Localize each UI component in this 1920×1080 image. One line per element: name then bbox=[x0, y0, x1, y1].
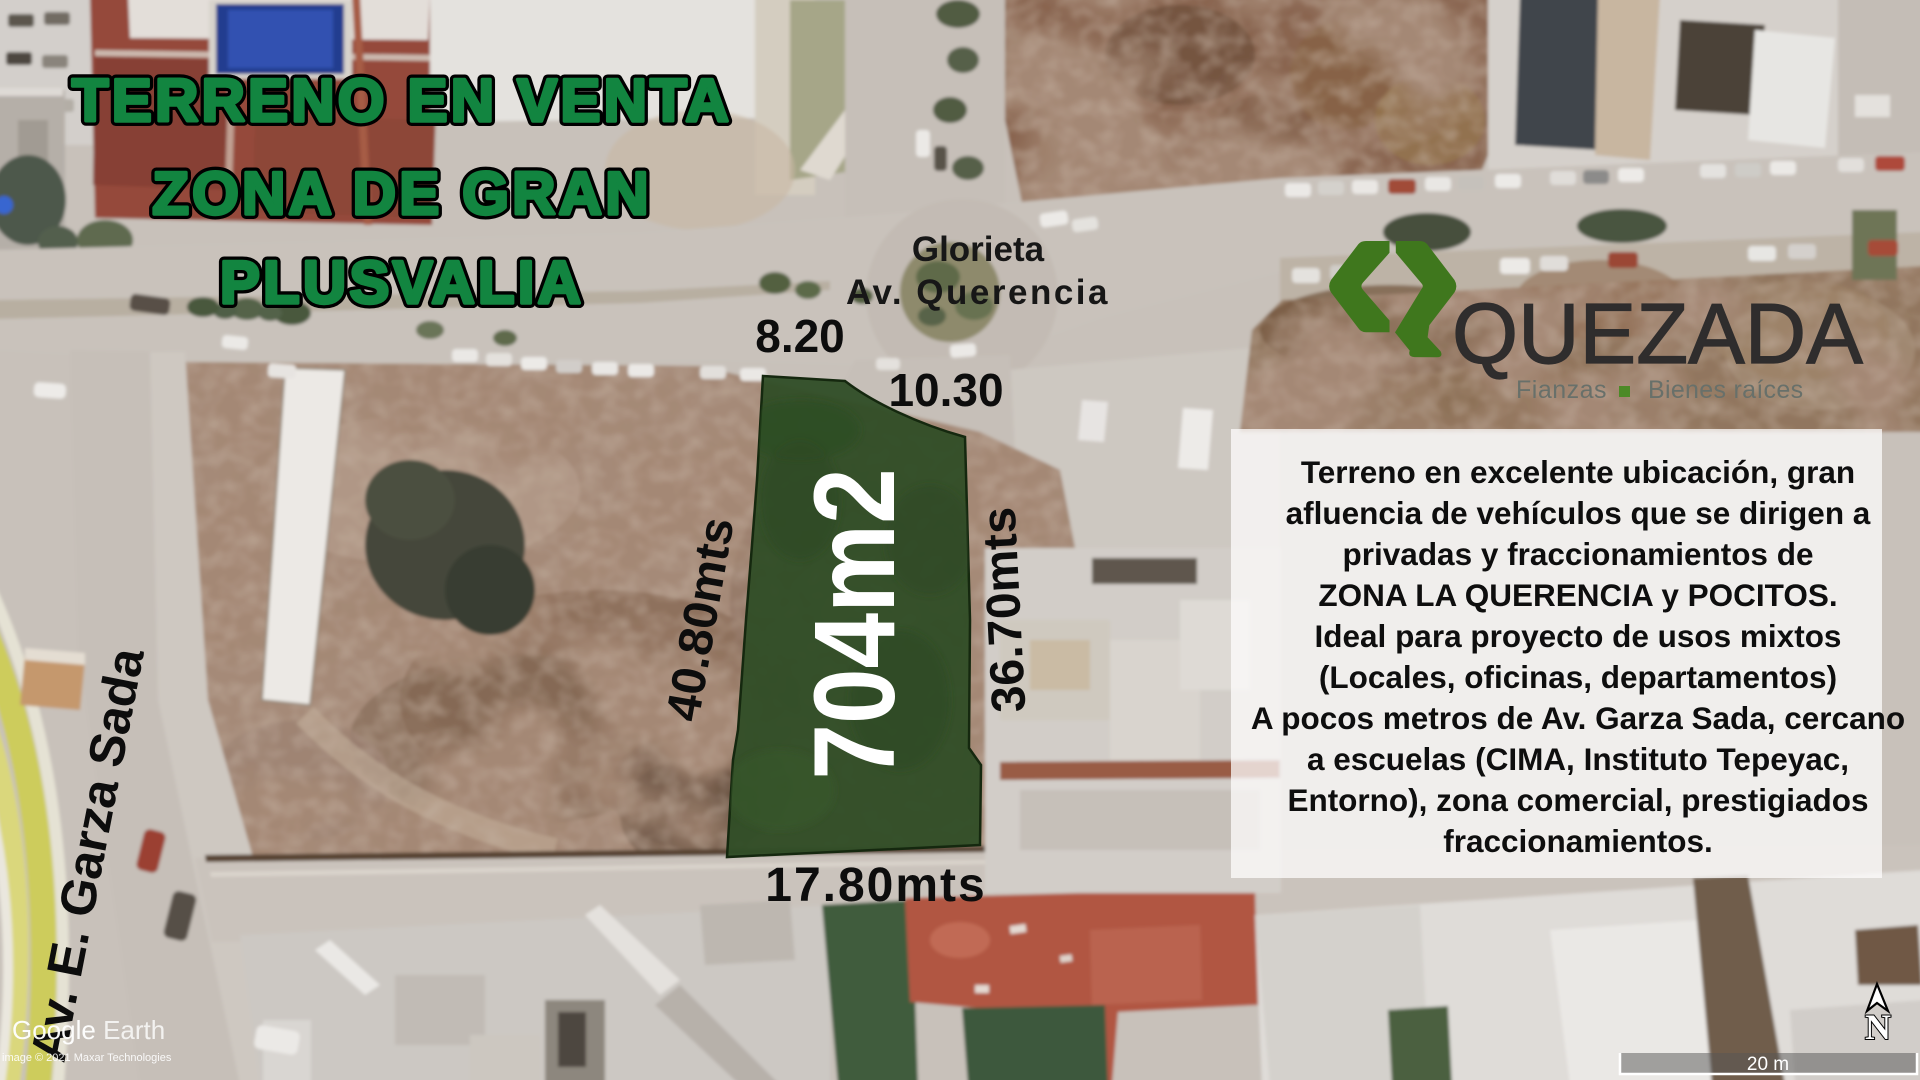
svg-text:TERRENO EN VENTA: TERRENO EN VENTA bbox=[72, 67, 732, 134]
svg-text:Bienes raíces: Bienes raíces bbox=[1648, 376, 1803, 404]
svg-text:QUEZADA: QUEZADA bbox=[1452, 287, 1863, 382]
svg-text:20 m: 20 m bbox=[1747, 1054, 1789, 1075]
svg-text:17.80mts: 17.80mts bbox=[765, 859, 986, 912]
svg-text:8.20: 8.20 bbox=[755, 310, 845, 362]
svg-text:36.70mts: 36.70mts bbox=[973, 506, 1037, 714]
svg-text:Terreno en excelente ubicación: Terreno en excelente ubicación, gran bbox=[1301, 454, 1855, 490]
svg-text:A pocos metros de Av. Garza Sa: A pocos metros de Av. Garza Sada, cercan… bbox=[1251, 700, 1905, 736]
svg-text:10.30: 10.30 bbox=[888, 364, 1003, 416]
svg-text:Av. Querencia: Av. Querencia bbox=[846, 273, 1110, 312]
svg-text:a escuelas (CIMA, Instituto Te: a escuelas (CIMA, Instituto Tepeyac, bbox=[1307, 741, 1849, 777]
svg-text:image © 2021 Maxar Technologie: image © 2021 Maxar Technologies bbox=[2, 1052, 172, 1064]
svg-text:privadas y fraccionamientos de: privadas y fraccionamientos de bbox=[1343, 536, 1814, 572]
svg-text:Google Earth: Google Earth bbox=[12, 1015, 165, 1045]
svg-text:PLUSVALIA: PLUSVALIA bbox=[220, 249, 584, 316]
svg-text:ZONA DE GRAN: ZONA DE GRAN bbox=[152, 160, 652, 227]
svg-text:fraccionamientos.: fraccionamientos. bbox=[1443, 823, 1713, 859]
svg-text:Glorieta: Glorieta bbox=[912, 230, 1045, 269]
svg-text:Fianzas: Fianzas bbox=[1516, 376, 1607, 404]
svg-text:704m2: 704m2 bbox=[789, 468, 918, 779]
svg-text:Entorno), zona comercial, pres: Entorno), zona comercial, prestigiados bbox=[1287, 782, 1868, 818]
svg-text:ZONA LA QUERENCIA y POCITOS.: ZONA LA QUERENCIA y POCITOS. bbox=[1318, 577, 1837, 613]
svg-text:afluencia de vehículos que se: afluencia de vehículos que se dirigen a bbox=[1286, 495, 1871, 531]
svg-text:N: N bbox=[1865, 1007, 1891, 1047]
svg-text:Ideal para proyecto de usos mi: Ideal para proyecto de usos mixtos bbox=[1315, 618, 1842, 654]
svg-text:(Locales, oficinas, departamen: (Locales, oficinas, departamentos) bbox=[1319, 659, 1837, 695]
